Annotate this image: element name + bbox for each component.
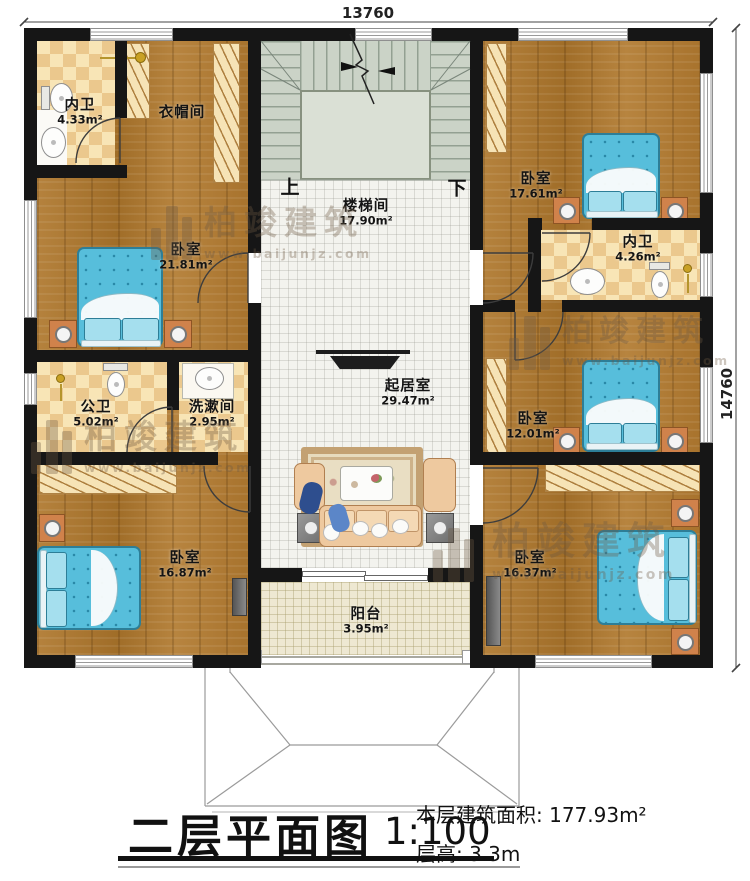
faucet-icon	[135, 52, 146, 63]
bed-sheet	[81, 293, 159, 320]
dimension-height: 14760	[718, 364, 736, 424]
pillow	[84, 318, 121, 341]
sliding-door-leaf	[302, 571, 366, 577]
stair-flight-left	[261, 41, 300, 180]
room-label-bedroom-topright: 卧室 17.61m²	[509, 171, 562, 200]
room-name: 卧室	[158, 550, 211, 566]
wall-bath-divider	[167, 362, 179, 410]
room-label-bedroom-bottomleft: 卧室 16.87m²	[158, 550, 211, 579]
armchair-right	[423, 458, 456, 512]
room-area: 12.01m²	[506, 428, 559, 441]
bed-bottomleft	[37, 546, 141, 630]
watermark: 柏竣建筑 www.baijunjz.com	[508, 316, 730, 370]
room-name: 内卫	[615, 234, 660, 250]
bed-midright	[582, 360, 660, 452]
flower-decor	[371, 474, 382, 483]
wall-bedroom-tr-bottom-b	[592, 218, 713, 230]
pillow	[46, 552, 67, 589]
wardrobe-bedroom-mr	[486, 358, 507, 453]
sink-icon	[41, 127, 66, 158]
wall-bedroom-mr-bottom	[483, 452, 713, 465]
bed-topleft	[77, 247, 163, 347]
brand-logo-icon	[432, 522, 482, 582]
window	[700, 253, 713, 297]
nightstand	[671, 499, 699, 527]
shower-head-icon	[56, 374, 65, 383]
nightstand	[671, 628, 699, 655]
tv-shelf-icon	[316, 350, 410, 354]
wall-center-right-a	[470, 41, 483, 250]
bed-sheet	[586, 398, 656, 425]
brand-logo-icon	[508, 316, 552, 370]
nightstand	[553, 197, 580, 224]
wall-bath1-bottom	[24, 165, 127, 178]
room-name: 内卫	[57, 97, 102, 113]
wall-bath1-right	[115, 41, 127, 118]
balcony-rail	[251, 656, 483, 658]
window	[535, 655, 652, 668]
room-name: 衣帽间	[159, 105, 206, 121]
wardrobe-cloakroom-right	[213, 43, 240, 183]
window	[518, 28, 628, 41]
nightstand	[661, 427, 688, 454]
wall-bath-right-bottom-a	[483, 300, 515, 312]
room-area: 16.87m²	[158, 567, 211, 580]
roof-outline	[205, 668, 519, 812]
watermark-url: www.baijunjz.com	[204, 246, 372, 261]
watermark: 柏竣建筑 www.baijunjz.com	[432, 522, 675, 583]
room-name: 卧室	[509, 171, 562, 187]
floor-area-text: 本层建筑面积: 177.93m²	[416, 799, 647, 828]
room-name: 阳台	[343, 606, 388, 622]
window	[75, 655, 193, 668]
shower-hose-icon	[687, 274, 689, 293]
pillow	[588, 191, 622, 212]
room-area: 4.26m²	[615, 251, 660, 264]
pillow	[668, 579, 689, 621]
watermark-brand: 柏竣建筑	[204, 206, 372, 241]
window	[355, 28, 432, 41]
wall-exterior-left	[24, 28, 37, 668]
wall-bath-right-bottom-b	[562, 300, 713, 312]
round-cushion	[371, 523, 388, 538]
toilet-icon	[651, 271, 669, 298]
watermark: 柏竣建筑 www.baijunjz.com	[150, 206, 372, 261]
stair-flight-top	[300, 41, 431, 90]
headboard	[689, 534, 696, 623]
room-label-bath-right: 内卫 4.26m²	[615, 234, 660, 263]
room-label-living: 起居室 29.47m²	[381, 378, 434, 407]
watermark: 柏竣建筑 www.baijunjz.com	[30, 420, 252, 475]
watermark-url: www.baijunjz.com	[492, 567, 675, 583]
shower-hose-icon	[60, 384, 62, 401]
watermark-url: www.baijunjz.com	[562, 353, 730, 368]
window	[90, 28, 173, 41]
balcony-rail	[251, 663, 483, 665]
bed-topright	[582, 133, 660, 219]
round-cushion	[352, 521, 369, 536]
brand-logo-icon	[30, 420, 74, 474]
room-name: 卧室	[506, 411, 559, 427]
pillow	[122, 318, 159, 341]
round-cushion	[392, 519, 409, 534]
wall-center-right-b	[470, 305, 483, 465]
floorplan-canvas: 13760 14760 内卫 4.33m² 衣帽间 卧室 21.81m² 楼梯间…	[0, 0, 750, 881]
room-area: 3.95m²	[343, 623, 388, 636]
sink-icon	[195, 367, 224, 390]
toilet-tank-icon	[41, 86, 50, 110]
window	[700, 73, 713, 193]
wall-bath-right-left	[528, 230, 541, 312]
room-area: 17.61m²	[509, 188, 562, 201]
pillow	[623, 191, 657, 212]
watermark-brand: 柏竣建筑	[492, 522, 675, 562]
stair-landing	[300, 90, 431, 180]
tv-panel-icon	[232, 578, 247, 616]
wall-bedroom-tr-bottom-a	[528, 218, 542, 230]
watermark-brand: 柏竣建筑	[84, 420, 252, 455]
bed-sheet	[91, 550, 118, 626]
window	[24, 200, 37, 318]
wardrobe-bedroom-br	[545, 464, 700, 492]
stair-down-label: 下	[447, 174, 466, 201]
table-decor	[351, 481, 358, 488]
room-label-balcony: 阳台 3.95m²	[343, 606, 388, 635]
stair-flight-right	[431, 41, 470, 180]
stair-up-label: 上	[280, 173, 299, 200]
dimension-width: 13760	[338, 4, 398, 22]
pillow	[623, 423, 657, 444]
floor-height-text: 层高: 3.3m	[416, 838, 520, 867]
shower-head-icon	[683, 264, 692, 273]
toilet-tank-icon	[103, 363, 128, 371]
nightstand	[39, 514, 65, 542]
brand-logo-icon	[150, 206, 194, 260]
tv-panel-icon	[486, 576, 501, 646]
tv-icon	[330, 356, 400, 369]
room-area: 29.47m²	[381, 395, 434, 408]
room-name: 公卫	[73, 399, 118, 415]
headboard	[81, 340, 161, 347]
coffee-table	[340, 466, 393, 501]
room-label-bath-topleft: 内卫 4.33m²	[57, 97, 102, 126]
window	[700, 367, 713, 443]
wardrobe-bedroom-tr	[486, 43, 507, 153]
sink-icon	[570, 268, 605, 295]
headboard	[586, 443, 658, 450]
wall-balcony-stub-left	[261, 568, 302, 582]
room-label-bedroom-midright: 卧室 12.01m²	[506, 411, 559, 440]
room-name: 洗漱间	[189, 399, 236, 415]
watermark-brand: 柏竣建筑	[562, 316, 730, 348]
room-name: 起居室	[381, 378, 434, 394]
window	[24, 373, 37, 405]
watermark-url: www.baijunjz.com	[84, 460, 252, 475]
room-label-cloakroom: 衣帽间	[159, 105, 206, 121]
wall-bedroom21-bottom	[24, 350, 261, 362]
pillow	[46, 590, 67, 627]
headboard	[586, 211, 658, 218]
sliding-door-leaf	[364, 575, 428, 581]
toilet-icon	[107, 372, 125, 397]
nightstand	[49, 320, 77, 348]
bed-sheet	[586, 167, 656, 193]
room-area: 4.33m²	[57, 114, 102, 127]
nightstand	[164, 320, 192, 348]
pillow	[588, 423, 622, 444]
